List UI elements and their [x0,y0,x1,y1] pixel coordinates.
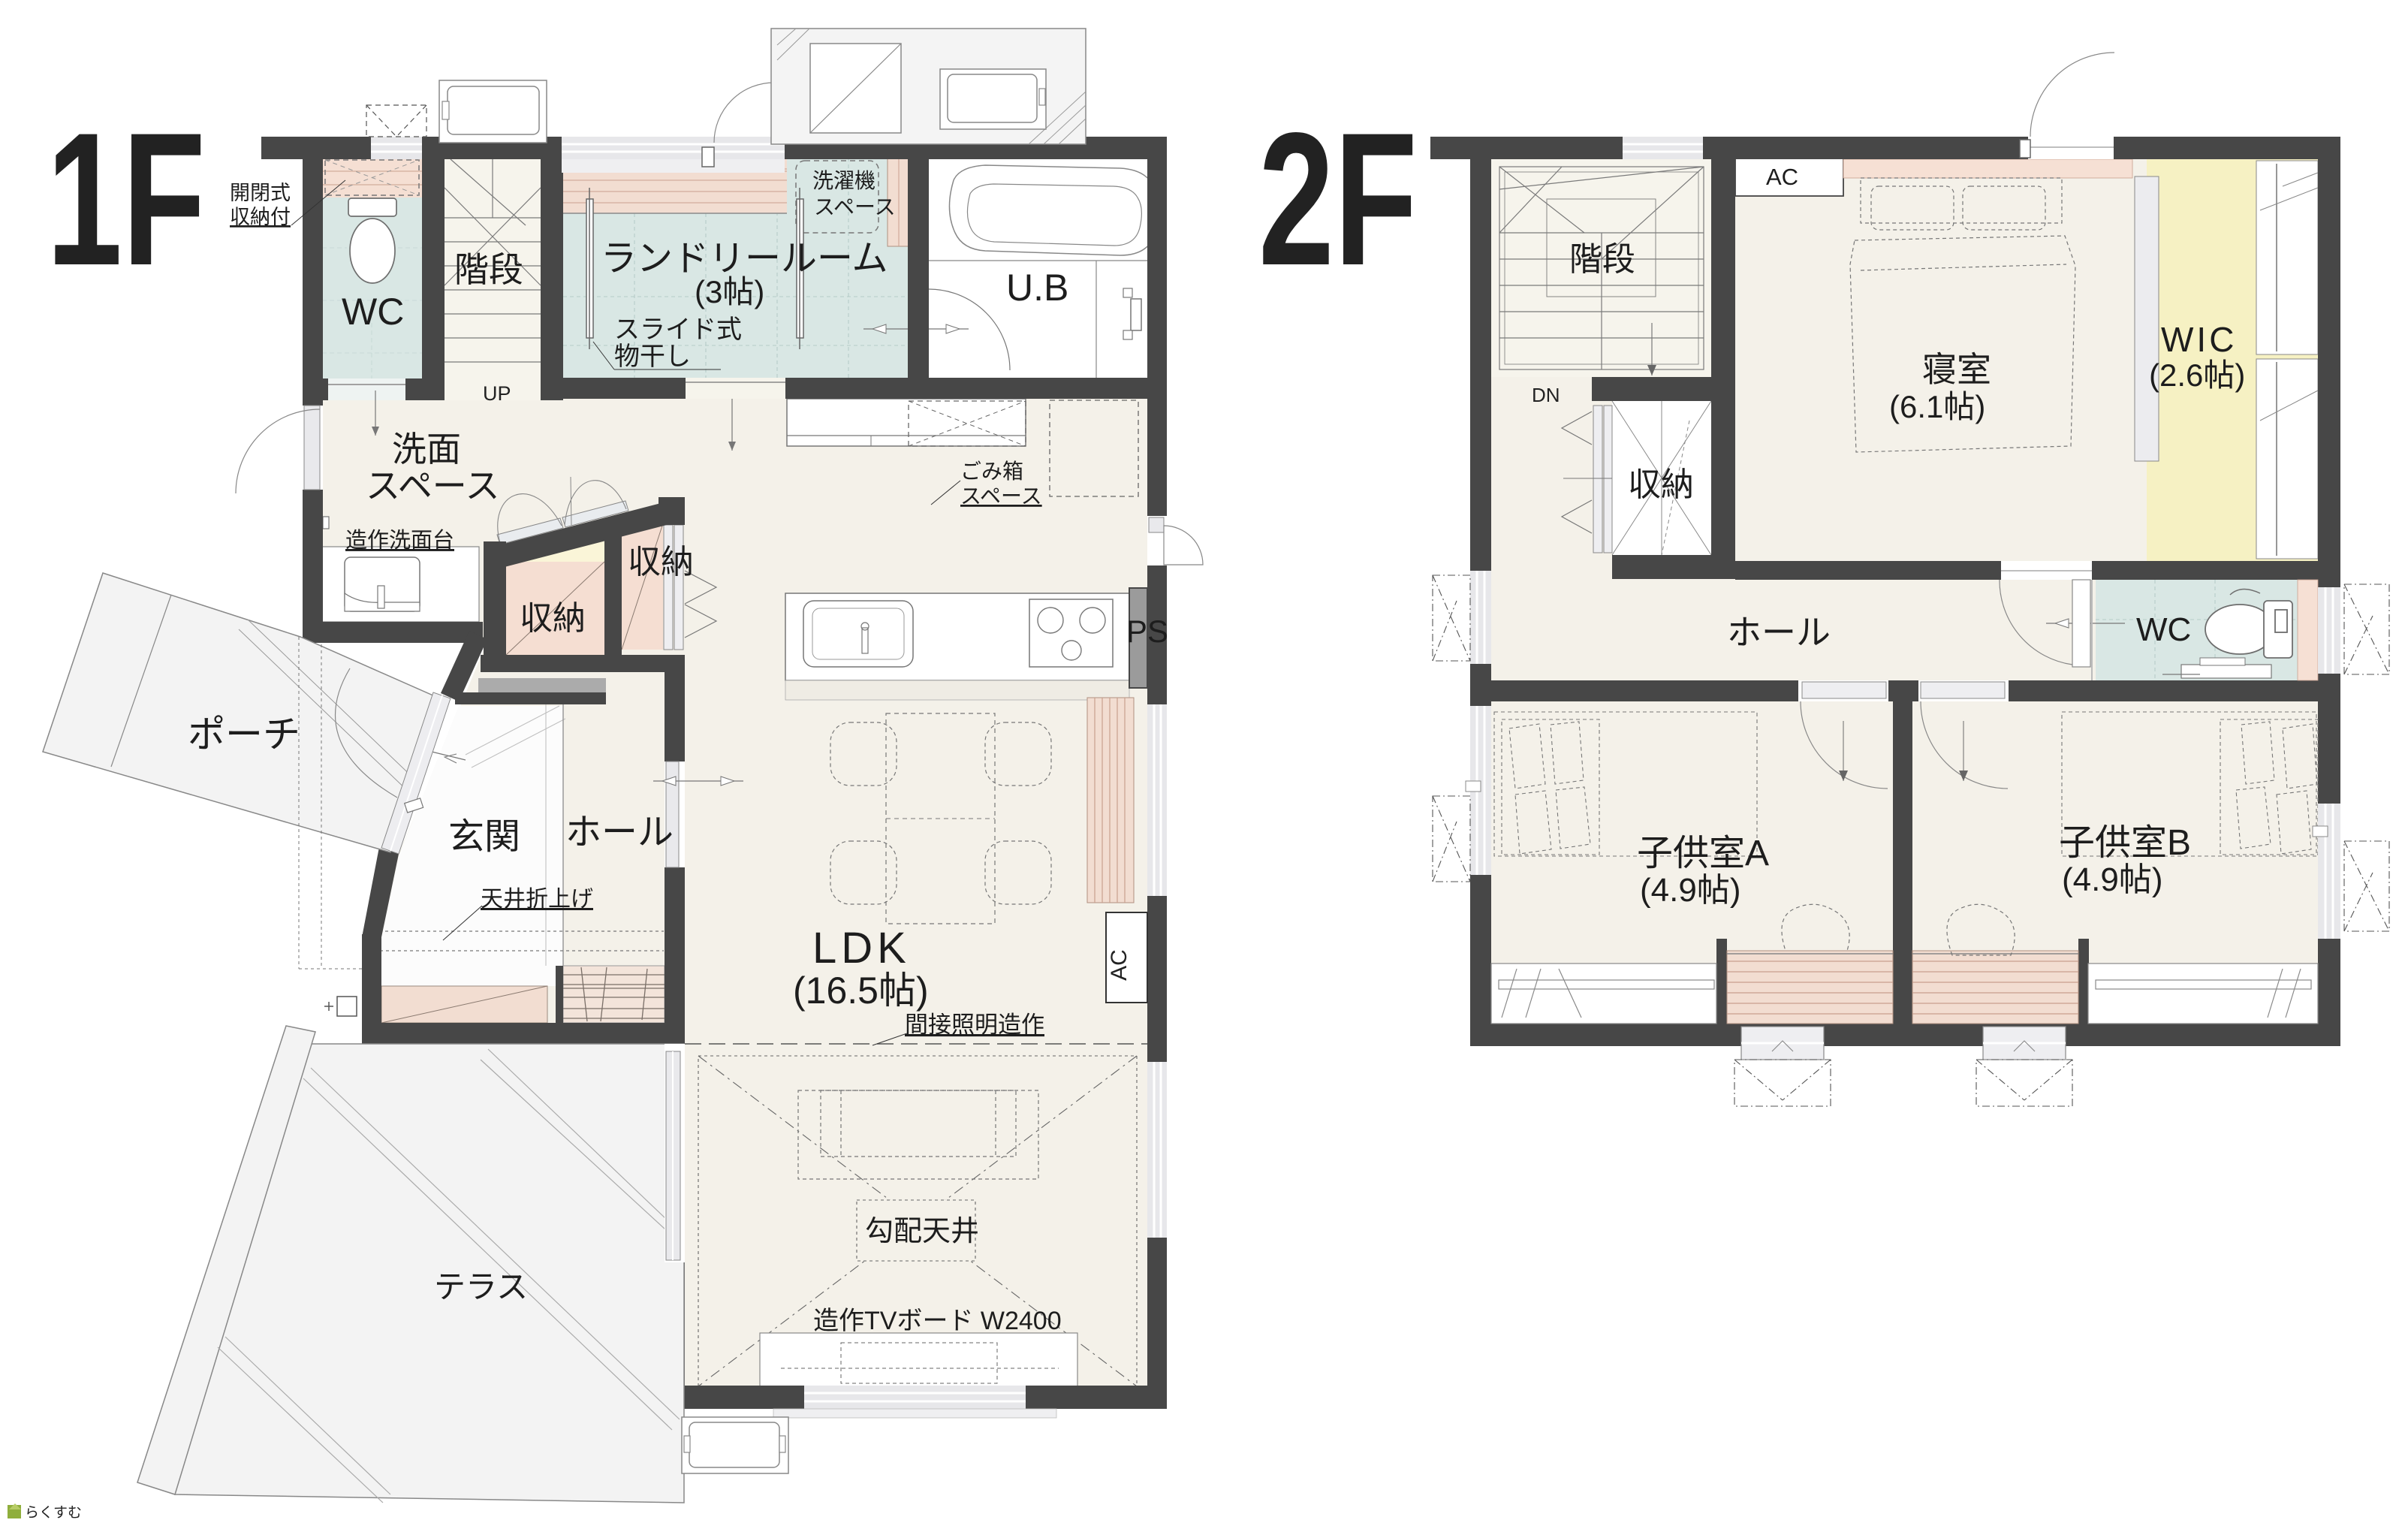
svg-text:間接照明造作: 間接照明造作 [905,1012,1044,1038]
svg-text:2F: 2F [1258,93,1418,305]
svg-text:(6.1帖): (6.1帖) [1889,389,1985,424]
svg-text:造作洗面台: 造作洗面台 [345,528,454,553]
svg-text:ホール: ホール [1727,613,1831,652]
svg-text:収納: 収納 [1628,466,1694,503]
svg-text:子供室A: 子供室A [1637,834,1769,873]
svg-text:天井折上げ: 天井折上げ [481,887,593,912]
svg-text:AC: AC [1766,164,1798,190]
svg-text:スライド式: スライド式 [614,315,742,344]
svg-text:DN: DN [1532,384,1560,406]
svg-text:スペース: スペース [960,484,1042,508]
svg-text:収納: 収納 [628,544,694,581]
svg-text:収納付: 収納付 [230,206,291,228]
svg-text:UP: UP [483,382,511,405]
svg-text:ホール: ホール [565,813,674,852]
svg-text:玄関: 玄関 [448,817,520,857]
svg-text:ランドリールーム: ランドリールーム [601,239,888,279]
svg-text:PS: PS [1126,614,1168,649]
svg-text:ポーチ: ポーチ [188,713,300,755]
svg-text:洗面: 洗面 [392,430,461,469]
svg-text:(4.9帖): (4.9帖) [1640,872,1740,909]
svg-text:WC: WC [342,291,404,333]
svg-text:(3帖): (3帖) [695,274,764,309]
svg-text:スペース: スペース [814,195,896,219]
svg-text:(16.5帖): (16.5帖) [793,970,929,1012]
svg-text:子供室B: 子供室B [2059,823,2191,863]
svg-text:WC: WC [2136,611,2191,648]
svg-text:LDK: LDK [812,924,911,973]
svg-text:階段: 階段 [1569,241,1635,278]
svg-text:(4.9帖): (4.9帖) [2062,861,2162,898]
svg-text:開閉式: 開閉式 [230,182,291,204]
svg-text:寝室: 寝室 [1922,350,1991,389]
svg-text:(2.6帖): (2.6帖) [2149,357,2245,393]
svg-text:WIC: WIC [2161,320,2237,359]
svg-text:U.B: U.B [1006,267,1068,309]
svg-text:らくすむ: らくすむ [25,1505,82,1521]
svg-text:スペース: スペース [366,466,499,505]
svg-text:洗濯機: 洗濯機 [812,169,875,192]
svg-text:1F: 1F [47,93,206,305]
svg-text:ごみ箱: ごみ箱 [960,460,1023,483]
svg-text:テラス: テラス [434,1269,528,1304]
svg-text:AC: AC [1107,949,1132,981]
svg-text:物干し: 物干し [614,342,691,371]
svg-text:勾配天井: 勾配天井 [865,1216,979,1247]
svg-text:造作TVボード W2400: 造作TVボード W2400 [813,1307,1062,1335]
svg-text:収納: 収納 [520,600,586,637]
svg-text:階段: 階段 [454,250,523,289]
